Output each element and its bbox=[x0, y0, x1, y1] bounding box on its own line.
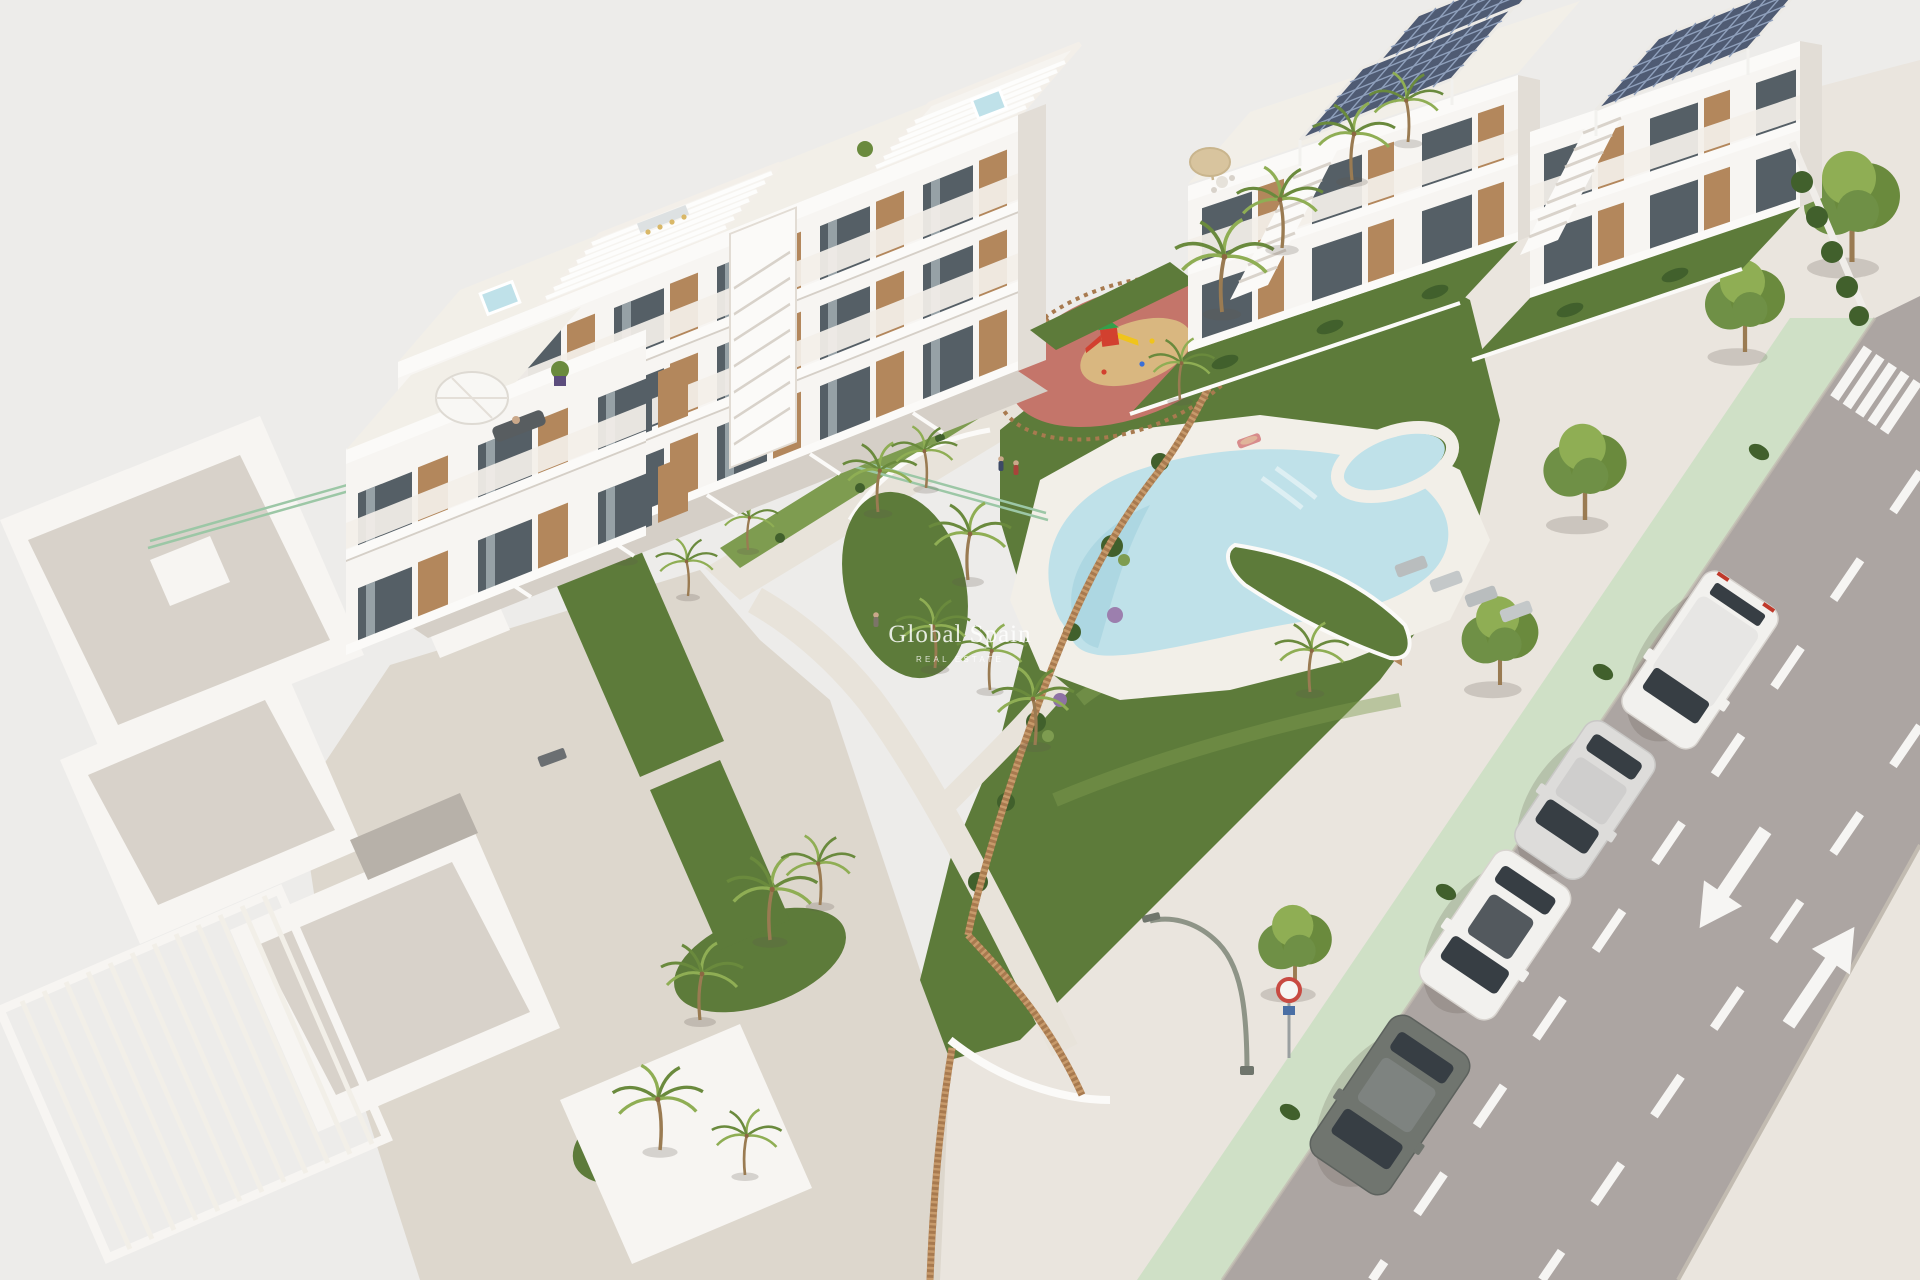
seated-person bbox=[512, 416, 520, 424]
stair-tower bbox=[730, 208, 796, 468]
child-figure bbox=[1149, 338, 1154, 343]
pedestrian bbox=[1013, 460, 1019, 475]
child-figure bbox=[1139, 361, 1144, 366]
watermark-title: Global Spain bbox=[888, 621, 1031, 648]
flowering-shrub bbox=[1107, 607, 1123, 623]
terrace-parasol bbox=[436, 372, 508, 424]
render-viewport: Global Spain REAL ESTATE bbox=[0, 0, 1920, 1280]
roof-plant bbox=[857, 141, 873, 157]
pedestrian bbox=[873, 612, 879, 627]
architectural-render: Global Spain REAL ESTATE bbox=[0, 0, 1920, 1280]
pedestrian bbox=[998, 456, 1004, 471]
watermark-subtitle: REAL ESTATE bbox=[916, 655, 1004, 664]
child-figure bbox=[1101, 369, 1106, 374]
